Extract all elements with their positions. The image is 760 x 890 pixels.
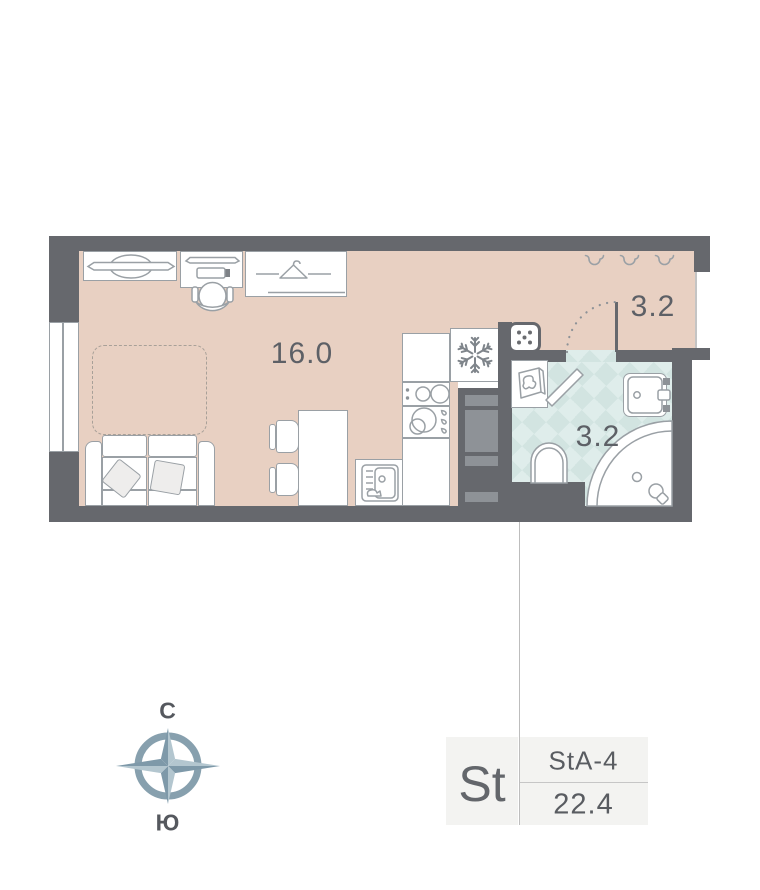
unit-card-divider	[520, 782, 648, 783]
unit-type-box: St	[446, 737, 518, 825]
shaft-panel	[465, 492, 498, 502]
tv-stand	[83, 251, 177, 281]
sofa-back-cushion	[148, 435, 197, 457]
dining-chair-back	[269, 424, 276, 450]
kitchen-washbasin-icon	[403, 407, 449, 437]
bed-outline	[92, 345, 207, 435]
wall-bathroom-bottom-block	[498, 482, 585, 506]
snowflake-icon	[451, 329, 499, 381]
kitchen-washbasin	[402, 406, 450, 438]
desk-chair-icon	[190, 285, 236, 315]
towel-rail	[540, 364, 590, 412]
wardrobe	[245, 251, 347, 297]
sofa-armrest-left	[85, 441, 102, 506]
wall-left-upper	[49, 236, 79, 322]
shaft-panel	[465, 395, 498, 406]
boundary-line-right	[695, 272, 697, 348]
wall-top	[49, 236, 710, 251]
kitchen-sink-icon	[356, 460, 402, 505]
wall-bottom	[49, 506, 672, 522]
toilet	[526, 438, 572, 484]
vent-dots-icon	[511, 325, 538, 350]
floor-plan-page: 16.0 3.2 3.2 С Ю St StA-4 22.4	[0, 0, 760, 890]
kitchen-sink-unit	[355, 459, 403, 506]
living-room-area-label: 16.0	[271, 337, 333, 371]
vent-box	[508, 322, 541, 353]
kitchen-counter	[402, 438, 450, 506]
window	[49, 322, 79, 452]
compass-star	[116, 728, 220, 804]
window-mullion	[62, 323, 64, 451]
kitchen-counter	[402, 333, 450, 382]
coat-hooks-icon	[586, 250, 686, 263]
sofa-armrest-right	[198, 441, 215, 506]
door-swing-arc	[560, 296, 624, 358]
sofa-pillow	[150, 460, 186, 496]
dining-chair-seat	[276, 420, 299, 453]
unit-info-box: StA-4 22.4	[520, 737, 648, 825]
wall-right-step	[672, 348, 710, 360]
utility-shaft	[458, 388, 505, 506]
compass-rose	[108, 706, 228, 826]
bath-sink-icon	[624, 374, 682, 416]
sofa-back-cushion	[102, 435, 147, 457]
unit-plan-code: StA-4	[548, 746, 618, 777]
dining-table	[298, 410, 348, 506]
hallway-area-label: 3.2	[631, 290, 676, 324]
hanger-icon	[246, 252, 346, 296]
compass-south-label: Ю	[156, 810, 181, 837]
unit-total-area: 22.4	[553, 789, 613, 822]
wall-corner-top-right	[694, 251, 710, 272]
water-drops-icon	[440, 409, 446, 433]
shaft-panel	[465, 410, 498, 452]
stove	[402, 382, 450, 406]
stove-burners-icon	[403, 383, 449, 405]
fridge	[450, 328, 500, 382]
dining-chair-back	[269, 467, 276, 493]
bathroom-area-label: 3.2	[576, 420, 621, 454]
dining-chair-seat	[276, 463, 299, 496]
tv-stand-icon	[84, 252, 178, 282]
unit-type-code: St	[458, 755, 505, 813]
shaft-panel	[465, 456, 498, 466]
bath-sink	[623, 373, 667, 417]
desk-chair	[190, 285, 236, 315]
wall-bathroom-top-right	[616, 350, 672, 362]
